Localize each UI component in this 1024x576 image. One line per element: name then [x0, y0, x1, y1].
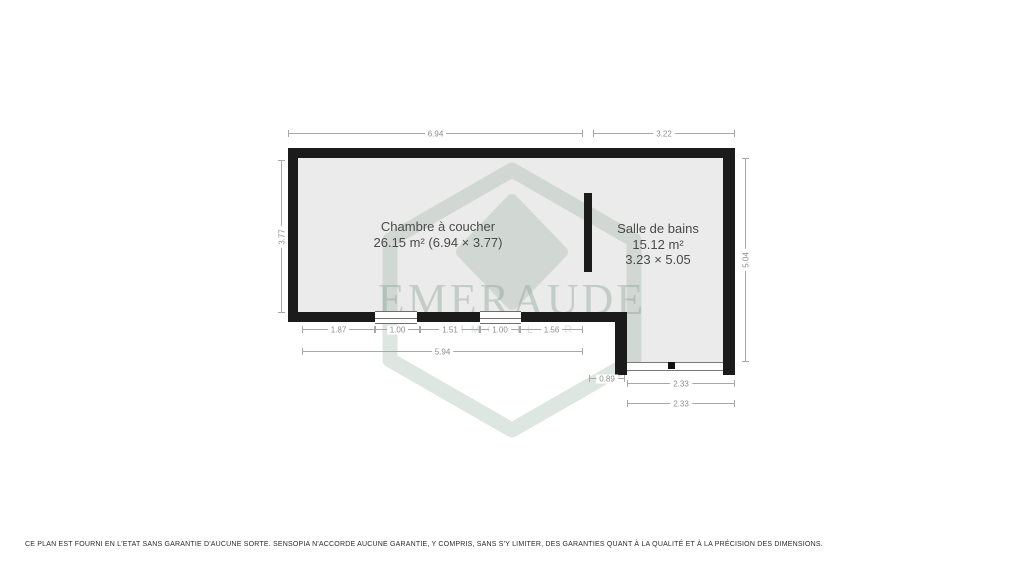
- dim-notch-value: 0.89: [596, 375, 618, 384]
- floorplan-page: EMERAUDE IMMOBILIER Chambre à coucher 26…: [0, 0, 1024, 576]
- wall-right: [723, 148, 735, 375]
- bathroom-sliding-door: [627, 362, 723, 371]
- dim-top-bedroom: 6.94: [288, 133, 583, 134]
- dim-bottom-seg-1-value: 1.87: [328, 326, 350, 335]
- dim-bottom-seg-5-value: 1.56: [541, 326, 563, 335]
- dim-bottom-total: 5.94: [302, 351, 583, 352]
- wall-bottom-segment-b: [417, 312, 480, 322]
- wall-bottom-segment-a: [288, 312, 375, 322]
- dim-bottom-seg-3: 1.51: [420, 329, 480, 330]
- dim-right-height: 5.04: [745, 158, 746, 362]
- disclaimer-text: CE PLAN EST FOURNI EN L'ETAT SANS GARANT…: [25, 541, 823, 548]
- dim-bath-bottom-total: 2.33: [627, 403, 735, 404]
- bedroom-name: Chambre à coucher: [318, 219, 558, 235]
- dim-right-height-value: 5.04: [742, 249, 751, 271]
- bathroom-area: 15.12 m²: [598, 237, 718, 253]
- wall-left: [288, 148, 298, 322]
- dim-bottom-seg-2-value: 1.00: [387, 326, 409, 335]
- dim-bottom-seg-5: 1.56: [520, 329, 583, 330]
- bedroom-label: Chambre à coucher 26.15 m² (6.94 × 3.77): [318, 219, 558, 250]
- wall-bottom-segment-c: [521, 312, 627, 322]
- bathroom-dims: 3.23 × 5.05: [598, 252, 718, 268]
- dim-left-height-value: 3.77: [278, 226, 287, 248]
- dim-notch: 0.89: [589, 378, 625, 379]
- dim-bottom-seg-4: 1.00: [480, 329, 520, 330]
- dim-bath-bottom-total-value: 2.33: [670, 400, 692, 409]
- dim-bottom-total-value: 5.94: [432, 348, 454, 357]
- dim-left-height: 3.77: [281, 160, 282, 313]
- bedroom-area: 26.15 m² (6.94 × 3.77): [318, 235, 558, 251]
- dim-top-bathroom-value: 3.22: [653, 130, 675, 139]
- wall-top: [288, 148, 735, 158]
- dim-bath-bottom-door-value: 2.33: [670, 380, 692, 389]
- wall-notch: [615, 312, 627, 375]
- dim-bottom-seg-4-value: 1.00: [489, 326, 511, 335]
- dim-bath-bottom-door: 2.33: [627, 383, 735, 384]
- dim-top-bedroom-value: 6.94: [425, 130, 447, 139]
- watermark-tagline: IMMOBILIER: [374, 324, 650, 336]
- dim-bottom-seg-2: 1.00: [375, 329, 420, 330]
- dim-top-bathroom: 3.22: [593, 133, 735, 134]
- bathroom-label: Salle de bains 15.12 m² 3.23 × 5.05: [598, 221, 718, 268]
- bedroom-window-2: [480, 311, 521, 324]
- sliding-door-handle-icon: [668, 362, 675, 369]
- bedroom-window-1: [375, 311, 417, 324]
- bathroom-name: Salle de bains: [598, 221, 718, 237]
- dim-bottom-seg-3-value: 1.51: [439, 326, 461, 335]
- wall-partition: [584, 193, 592, 272]
- dim-bottom-seg-1: 1.87: [302, 329, 375, 330]
